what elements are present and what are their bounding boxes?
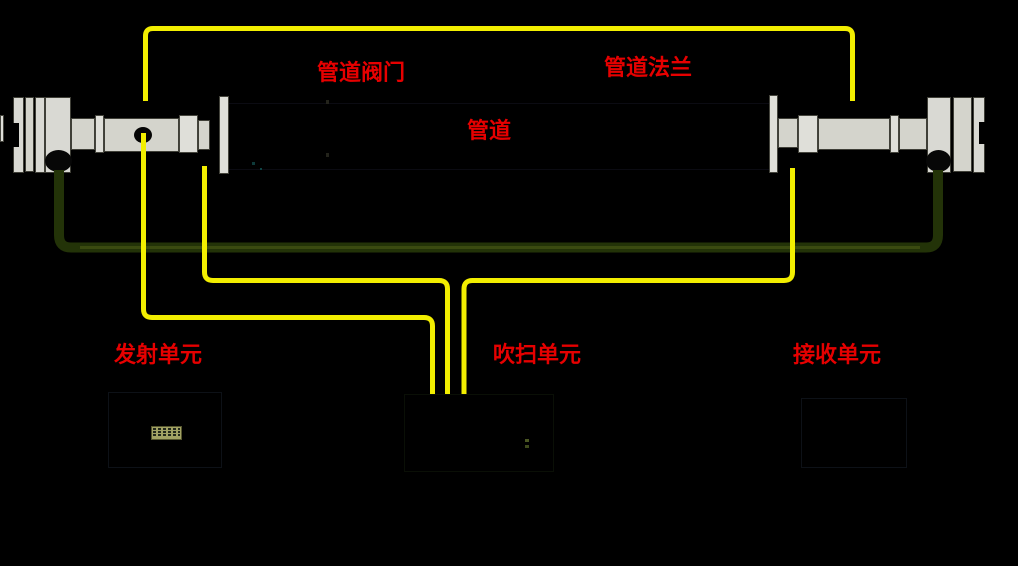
probe-ring [890, 115, 899, 153]
purge-indicator-dot [525, 445, 529, 448]
receiver-unit-box [801, 398, 907, 468]
purge-indicator-dot [525, 439, 529, 442]
cable-layer [0, 0, 1018, 566]
mounting-flange [219, 96, 229, 174]
signal-cable [59, 170, 938, 248]
lcd-pixels [153, 434, 180, 436]
cable-gland [926, 150, 951, 172]
housing-slab [953, 97, 972, 172]
label-transmitter-unit: 发射单元 [114, 337, 202, 369]
probe-collar [179, 115, 198, 153]
diagram-canvas: 管道阀门 管道法兰 管道 发射单元 吹扫单元 接收单元 [0, 0, 1018, 566]
probe-ring [95, 115, 104, 153]
rear-connector-tab [0, 115, 4, 142]
top-purge-tube [146, 29, 853, 102]
transmitter-lcd-display [151, 426, 182, 440]
valve-edge-dot [326, 100, 329, 104]
label-receiver-unit: 接收单元 [793, 337, 881, 369]
housing-notch [13, 123, 19, 147]
housing-slab [25, 97, 34, 172]
label-purge-unit: 吹扫单元 [493, 337, 581, 369]
artifact-dot [252, 162, 255, 165]
lcd-pixels [153, 428, 180, 430]
lcd-pixels [153, 431, 180, 433]
purge-port-hole [134, 127, 152, 143]
probe-pipe [818, 118, 890, 150]
probe-collar [798, 115, 818, 153]
purge-tube-left-valve [205, 166, 448, 394]
housing-slab [35, 97, 45, 173]
housing-notch [979, 122, 986, 144]
label-pipe-flange: 管道法兰 [604, 50, 692, 82]
label-pipe-valve: 管道阀门 [317, 55, 405, 87]
label-pipe: 管道 [467, 113, 511, 145]
housing-neck [899, 118, 927, 150]
pipe-stub [198, 120, 210, 150]
mounting-flange [769, 95, 778, 173]
housing-neck [71, 118, 95, 150]
artifact-dot [260, 168, 262, 170]
cable-gland [45, 150, 72, 172]
valve-edge-dot [326, 153, 329, 157]
purge-unit-box [404, 394, 554, 472]
pipe-stub [778, 118, 798, 148]
